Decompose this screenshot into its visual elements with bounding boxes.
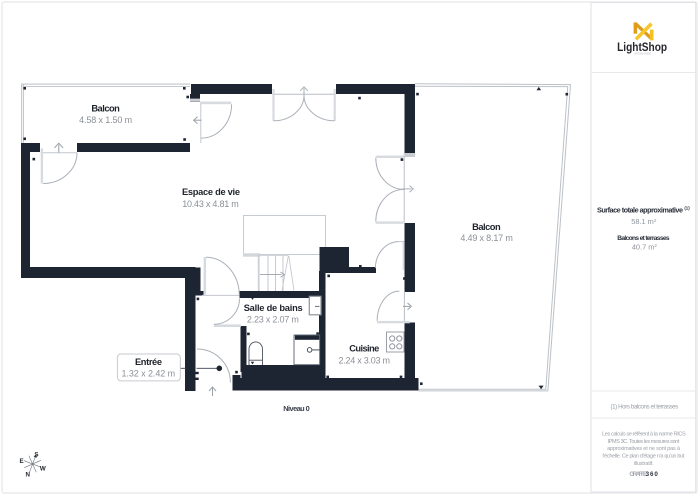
svg-text:IPMS 3C. Toutes les mesures so: IPMS 3C. Toutes les mesures sont	[608, 439, 680, 445]
svg-text:10.43 x 4.81 m: 10.43 x 4.81 m	[182, 199, 239, 209]
svg-text:Entrée: Entrée	[135, 357, 162, 367]
svg-text:W: W	[40, 466, 46, 473]
svg-text:Les calculs se réfèrent à la n: Les calculs se réfèrent à la norme RICS	[602, 431, 686, 437]
svg-text:1.32 x 2.42 m: 1.32 x 2.42 m	[121, 369, 175, 379]
svg-text:illustratif.: illustratif.	[634, 461, 654, 467]
svg-text:Espace de vie: Espace de vie	[182, 187, 240, 197]
svg-text:VIRTUAL STUDIO: VIRTUAL STUDIO	[634, 52, 651, 56]
svg-text:Salle de bains: Salle de bains	[244, 303, 303, 313]
svg-text:(1): (1)	[684, 205, 690, 210]
svg-text:Balcon: Balcon	[91, 103, 120, 113]
svg-text:approximatives et ne sont pas: approximatives et ne sont pas à	[607, 446, 681, 452]
svg-text:l'échelle. Ce plan d'étage n'a: l'échelle. Ce plan d'étage n'a qu'un but	[602, 454, 684, 460]
svg-text:(1) Hors balcons et terrasses: (1) Hors balcons et terrasses	[611, 403, 679, 410]
svg-text:2.23 x 2.07 m: 2.23 x 2.07 m	[247, 315, 299, 325]
svg-text:Balcons et terrasses: Balcons et terrasses	[617, 235, 670, 242]
svg-text:E: E	[20, 458, 24, 465]
svg-text:N: N	[25, 472, 30, 479]
svg-text:GIRAFFE360: GIRAFFE360	[629, 471, 658, 478]
svg-text:Niveau 0: Niveau 0	[283, 404, 310, 413]
svg-text:Cuisine: Cuisine	[349, 343, 379, 353]
svg-text:58.1 m2: 58.1 m2	[631, 217, 657, 226]
svg-text:Surface totale approximative: Surface totale approximative	[597, 205, 683, 214]
svg-text:S: S	[34, 451, 38, 458]
svg-text:4.58 x 1.50 m: 4.58 x 1.50 m	[79, 115, 132, 125]
svg-text:2.24 x 3.03 m: 2.24 x 3.03 m	[339, 356, 391, 366]
svg-text:40.7 m2: 40.7 m2	[632, 242, 658, 251]
svg-text:Balcon: Balcon	[472, 222, 501, 232]
svg-text:4.49 x 8.17 m: 4.49 x 8.17 m	[460, 233, 512, 243]
